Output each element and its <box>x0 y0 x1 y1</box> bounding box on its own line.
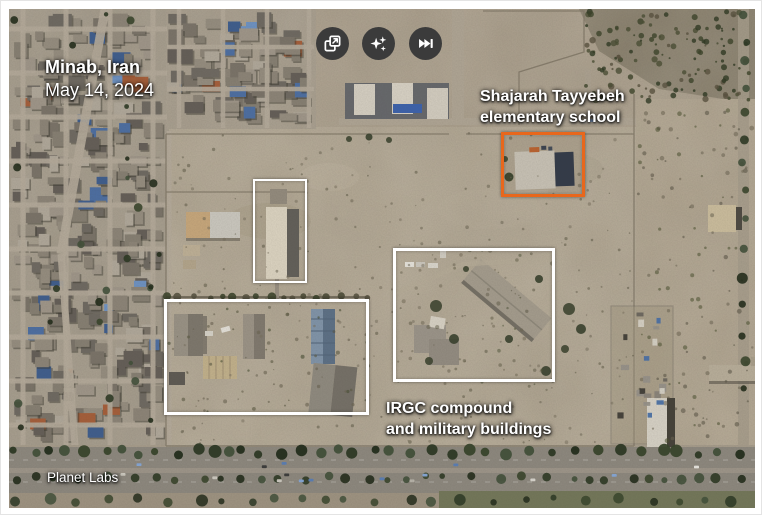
sparkles-icon <box>369 34 388 53</box>
military-buildings-highlight-box-2 <box>393 248 555 382</box>
military-building-highlight-box <box>253 179 307 283</box>
irgc-label: IRGC compound and military buildings <box>386 398 551 440</box>
open-in-new-button[interactable] <box>316 27 349 60</box>
location-label: Minab, Iran May 14, 2024 <box>45 56 154 102</box>
sparkle-button[interactable] <box>362 27 395 60</box>
irgc-compound-highlight-box <box>164 299 369 415</box>
open-in-new-icon <box>323 34 342 53</box>
school-highlight-box <box>501 132 585 197</box>
irgc-label-line1: IRGC compound <box>386 398 551 419</box>
satellite-image: Minab, Iran May 14, 2024 Shajarah Tayyeb… <box>9 9 755 508</box>
skip-to-end-icon <box>416 34 435 53</box>
school-label-line1: Shajarah Tayyebeh <box>480 86 625 107</box>
skip-to-end-button[interactable] <box>409 27 442 60</box>
irgc-label-line2: and military buildings <box>386 419 551 440</box>
school-label: Shajarah Tayyebeh elementary school <box>480 86 625 128</box>
capture-date: May 14, 2024 <box>45 79 154 102</box>
school-label-line2: elementary school <box>480 107 625 128</box>
source-credit: Planet Labs <box>47 470 118 485</box>
location-title: Minab, Iran <box>45 56 154 79</box>
news-graphic: Minab, Iran May 14, 2024 Shajarah Tayyeb… <box>0 0 762 515</box>
